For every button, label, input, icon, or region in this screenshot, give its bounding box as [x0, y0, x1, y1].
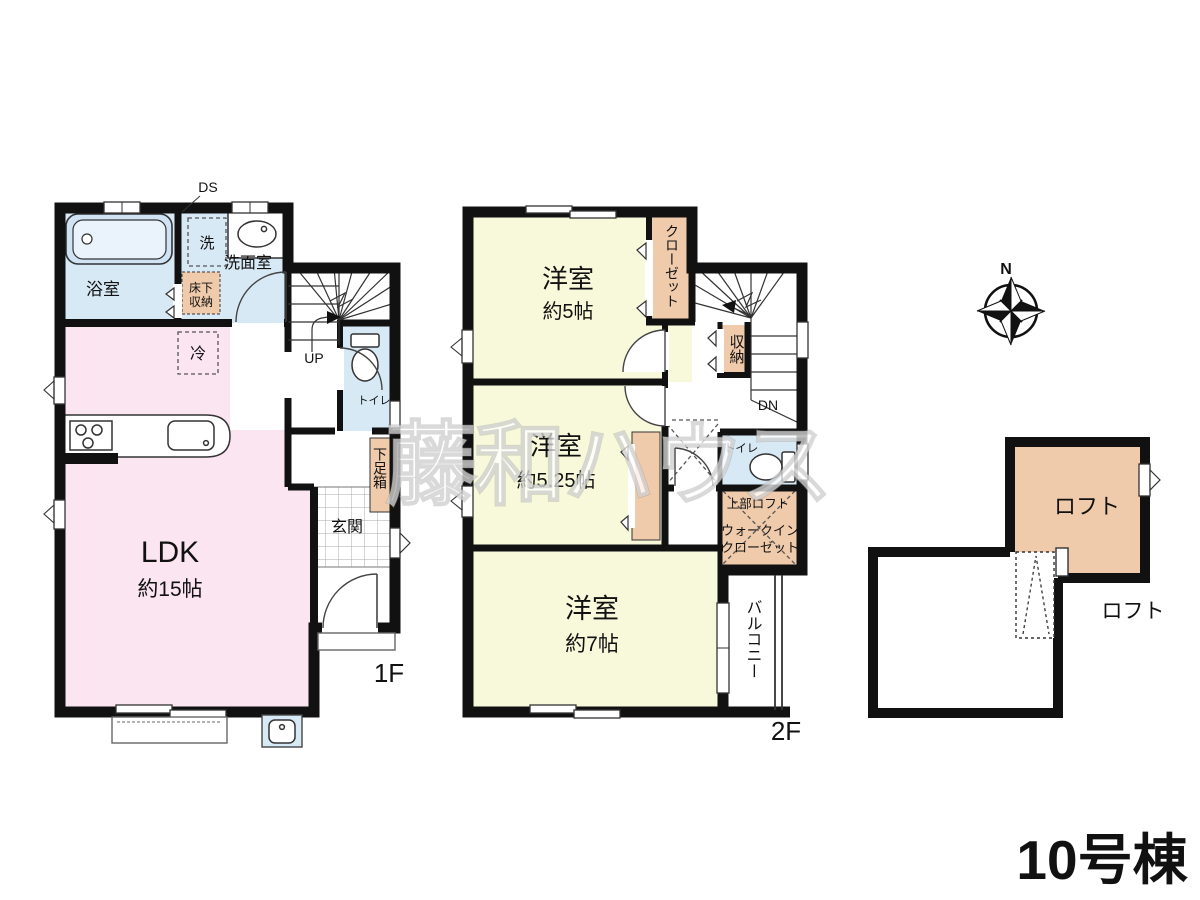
fridge-label: 冷	[190, 345, 206, 363]
bedroom1-label: 洋室	[542, 264, 594, 294]
bedroom3-area	[468, 548, 718, 712]
floor2-label: 2F	[771, 716, 801, 746]
balcony-label: バルコニー	[744, 599, 762, 679]
ldk-size-label: 約15帖	[137, 578, 202, 601]
loft-plan: ロフト ロフト	[868, 437, 1165, 718]
balcony-railing	[775, 575, 782, 710]
loft-window-marker	[1150, 470, 1160, 490]
closet-label: クローゼット	[664, 224, 680, 308]
floor-plan-page: 浴室 洗面室 洗 DS 床下 収納 冷 LDK 約15帖 UP トイレ 下足箱 …	[0, 0, 1200, 900]
toilet1-label: トイレ	[358, 395, 391, 407]
floor1-label: 1F	[374, 658, 404, 688]
kitchen-counter-icon	[56, 415, 230, 464]
compass-north-label: N	[1000, 261, 1012, 278]
loft-ladder-icon	[1016, 552, 1054, 638]
bedroom1-size-label: 約5帖	[542, 300, 593, 323]
underfloor-storage-label-2: 収納	[189, 295, 213, 309]
watermark-text: 藤和ハウス	[385, 415, 830, 517]
washer-label: 洗	[199, 235, 214, 252]
porch-step	[318, 633, 395, 650]
front-door-gap	[322, 622, 378, 634]
storage-door-gap	[716, 329, 724, 373]
bedroom3-size-label: 約7帖	[565, 633, 619, 656]
bathtub-icon	[66, 214, 172, 264]
storage-label: 収納	[728, 334, 745, 365]
walkin-closet-label-2: クローゼット	[721, 540, 799, 555]
vanity-sink-icon	[228, 212, 286, 258]
washroom-label: 洗面室	[224, 254, 272, 272]
toilet1-door-gap	[336, 348, 344, 390]
hallway-area	[230, 324, 288, 430]
ldk-label: LDK	[141, 536, 199, 569]
duct-space-label: DS	[198, 179, 217, 195]
compass-icon: N	[977, 261, 1045, 345]
toilet1-icon	[351, 334, 379, 381]
loft-window	[1139, 464, 1150, 496]
building-title: 10号棟	[1016, 829, 1188, 891]
loft-door	[1056, 548, 1068, 576]
loft-room-label: ロフト	[1054, 494, 1120, 519]
walkin-closet-label-1: ウォークイン	[721, 523, 799, 538]
terrace	[112, 717, 227, 743]
loft-caption-label: ロフト	[1102, 600, 1165, 623]
floor-plan-drawing: 浴室 洗面室 洗 DS 床下 収納 冷 LDK 約15帖 UP トイレ 下足箱 …	[0, 0, 1200, 900]
entrance-label: 玄関	[331, 518, 363, 536]
stairs-up-label: UP	[304, 350, 323, 366]
bedroom3-label: 洋室	[565, 594, 619, 624]
stairs-down-label: DN	[758, 397, 778, 413]
floor1-plan: 浴室 洗面室 洗 DS 床下 収納 冷 LDK 約15帖 UP トイレ 下足箱 …	[44, 179, 410, 747]
outdoor-sink-icon	[262, 715, 302, 747]
bathroom-label: 浴室	[86, 280, 120, 299]
underfloor-storage-label-1: 床下	[189, 281, 213, 295]
